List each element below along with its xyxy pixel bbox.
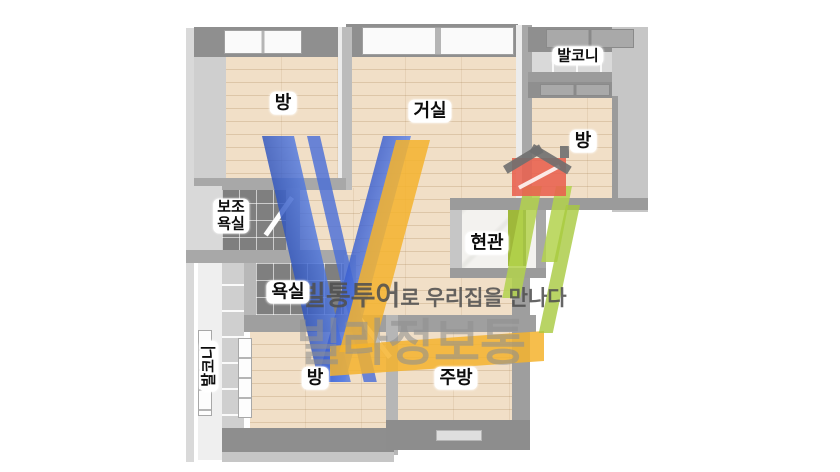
wall-room-left-face [194, 57, 226, 180]
room-label-balcony-left: 발코니 [199, 340, 218, 391]
wall-room-bottom-bottom-face [222, 452, 394, 462]
wall-outer-left [186, 28, 194, 462]
window-room-top-left [224, 30, 302, 54]
room-label-top-left: 방 [270, 92, 297, 115]
wall-room1-living [342, 27, 352, 190]
room-label-aux-bathroom: 보조 욕실 [213, 199, 249, 234]
aux-bathroom-line1: 보조 [217, 200, 245, 217]
room-label-balcony-top: 발코니 [552, 46, 603, 65]
floorplan-canvas: 빌통투어로 우리집을 만나다 빌라정보통 방 거실 발코니 방 보조 욕실 현관… [0, 0, 840, 472]
room-label-entrance: 현관 [465, 232, 508, 255]
room-label-living: 거실 [408, 100, 451, 123]
window-balcony-top [546, 29, 634, 48]
wall-entrance-top [450, 198, 648, 210]
wall-room-bottom-bottom [222, 428, 394, 454]
room-label-bottom: 방 [302, 367, 329, 390]
room-label-right: 방 [570, 130, 597, 153]
watermark-tagline-rest: 로 우리집을 만나다 [400, 287, 566, 310]
window-room-bottom-left [238, 338, 252, 418]
wall-room-right-inner-edge [612, 96, 618, 204]
room-label-bathroom: 욕실 [266, 281, 309, 304]
window-room-right [540, 84, 610, 96]
watermark-brand-text: 빌라정보통 [296, 303, 526, 375]
window-living-room [362, 27, 514, 55]
room-label-kitchen: 주방 [434, 367, 477, 390]
logo-house-chimney [560, 146, 569, 158]
aux-bathroom-line2: 욕실 [217, 216, 245, 233]
kitchen-counter [436, 430, 482, 441]
watermark-tagline: 빌통투어로 우리집을 만나다 [301, 274, 567, 313]
watermark-tagline-brand: 빌통투어 [301, 281, 400, 311]
